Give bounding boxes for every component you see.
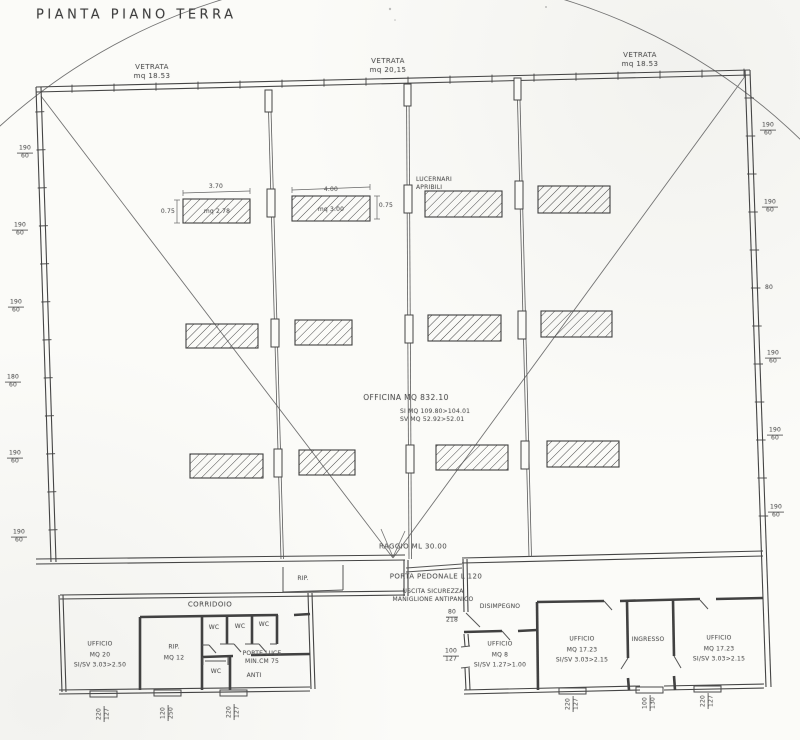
dim-window-right-4: 19060 (767, 428, 783, 443)
threshold-marks (90, 686, 721, 697)
emergency-exit-label: USCITA SICUREZZA MANIGLIONE ANTIPANICO (393, 588, 474, 604)
room-wc-3: WC (259, 621, 270, 629)
room-anti: ANTI (247, 672, 262, 680)
hall-name: OFFICINA MQ 832.10 (363, 393, 449, 403)
scan-specks (389, 6, 547, 21)
dim-window-right-5: 19060 (768, 505, 784, 520)
room-rip-small: RIP. (297, 575, 308, 583)
dim-right-80: 80 (765, 284, 773, 292)
dim-window-100-127: 100127 (443, 649, 459, 664)
dim-window-left-1: 19060 (17, 146, 33, 161)
skylight-height-a: 0.75 (161, 208, 175, 216)
skylight-hatch-group (183, 186, 619, 478)
skylight-note: LUCERNARI APRIBILI (416, 176, 452, 192)
dim-window-left-5: 19060 (7, 451, 23, 466)
glazing-label-left: VETRATA mq 18.53 (134, 63, 171, 81)
dim-window-left-2: 19060 (12, 223, 28, 238)
room-office17-a: UFFICIO MQ 17.23 SI/SV 3.03>2.15 (556, 634, 608, 666)
dim-bottom-right-3: 220127 (701, 693, 716, 709)
room-ingresso: INGRESSO (632, 636, 665, 644)
drawing-title: PIANTA PIANO TERRA (36, 8, 237, 25)
room-corridor: CORRIDOIO (188, 600, 232, 609)
floor-plan-drawing (0, 0, 800, 740)
dim-window-right-2: 19060 (762, 200, 778, 215)
dim-window-right-3: 19060 (765, 351, 781, 366)
radius-label: RAGGIO ML 30.00 (379, 542, 447, 551)
room-office8: UFFICIO MQ 8 SI/SV 1.27>1.00 (474, 639, 526, 671)
floor-plan-page: PIANTA PIANO TERRA VETRATA mq 18.53 VETR… (0, 0, 800, 740)
dim-bottom-left-3: 220127 (227, 704, 242, 720)
room-disimpegno: DISIMPEGNO (480, 603, 520, 611)
dim-window-left-4: 18060 (5, 375, 21, 390)
glazing-label-right: VETRATA mq 18.53 (622, 51, 659, 69)
room-office20: UFFICIO MQ 20 SI/SV 3.03>2.50 (74, 639, 126, 671)
room-wc-2: WC (235, 623, 246, 631)
dim-window-left-3: 19060 (8, 300, 24, 315)
skylight-area-a: mq 2.78 (204, 208, 230, 216)
pedestrian-door-label: PORTA PEDONALE L 120 (390, 572, 482, 581)
dim-window-left-6: 19060 (11, 530, 27, 545)
room-rip12: RIP. MQ 12 (164, 643, 184, 664)
room-office17-b: UFFICIO MQ 17.23 SI/SV 3.03>2.15 (693, 633, 745, 665)
pillars (265, 78, 529, 477)
skylight-height-b: 0.75 (379, 202, 393, 210)
dim-bottom-left-2: 120250 (161, 705, 176, 721)
dim-door-80-218: 80218 (446, 610, 458, 625)
hall-si-sv: SI MQ 109.80>104.01 SV MQ 52.92>52.01 (400, 408, 470, 424)
room-wc-1: WC (209, 624, 220, 632)
window-ticks (35, 69, 768, 530)
skylight-width-b: 4.00 (324, 186, 338, 194)
skylight-area-b: mq 3.00 (318, 206, 344, 214)
glazing-label-center: VETRATA mq 20,15 (370, 57, 407, 75)
dim-bottom-left-1: 220127 (97, 706, 112, 722)
dim-bottom-right-1: 220127 (566, 696, 581, 712)
skylight-width-a: 3.70 (209, 183, 223, 191)
door-width-note: PORTE LUCE MIN.CM 75 (243, 650, 282, 666)
dim-bottom-right-2: 100130 (643, 695, 658, 711)
room-wc-4: WC (211, 668, 222, 676)
dim-window-right-1: 19060 (760, 123, 776, 138)
radius-arc (0, 0, 800, 740)
